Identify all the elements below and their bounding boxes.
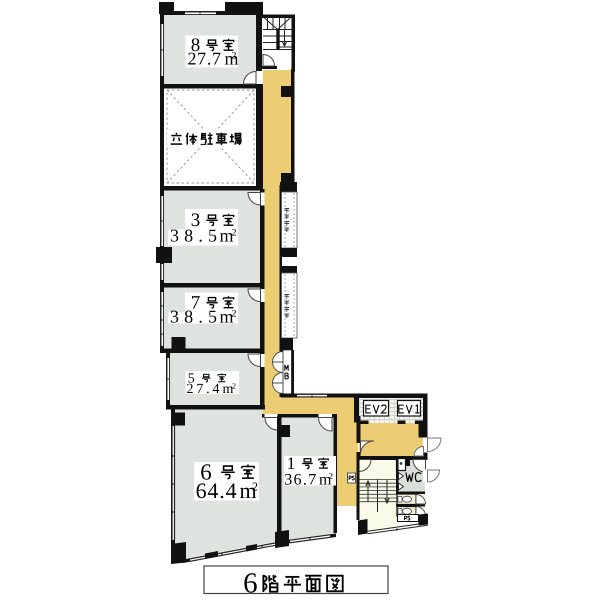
svg-text:2: 2: [252, 480, 258, 494]
svg-text:27.7: 27.7: [188, 48, 222, 68]
svg-text:2: 2: [232, 309, 237, 320]
svg-text:1: 1: [287, 453, 296, 473]
svg-text:2: 2: [232, 382, 236, 391]
svg-text:64.4: 64.4: [196, 478, 237, 503]
svg-text:27.4: 27.4: [187, 382, 220, 397]
svg-text:2: 2: [329, 471, 334, 481]
svg-text:36.7: 36.7: [284, 471, 316, 488]
svg-text:6: 6: [243, 567, 258, 599]
svg-text:2: 2: [232, 228, 237, 239]
svg-text:2: 2: [232, 51, 237, 62]
